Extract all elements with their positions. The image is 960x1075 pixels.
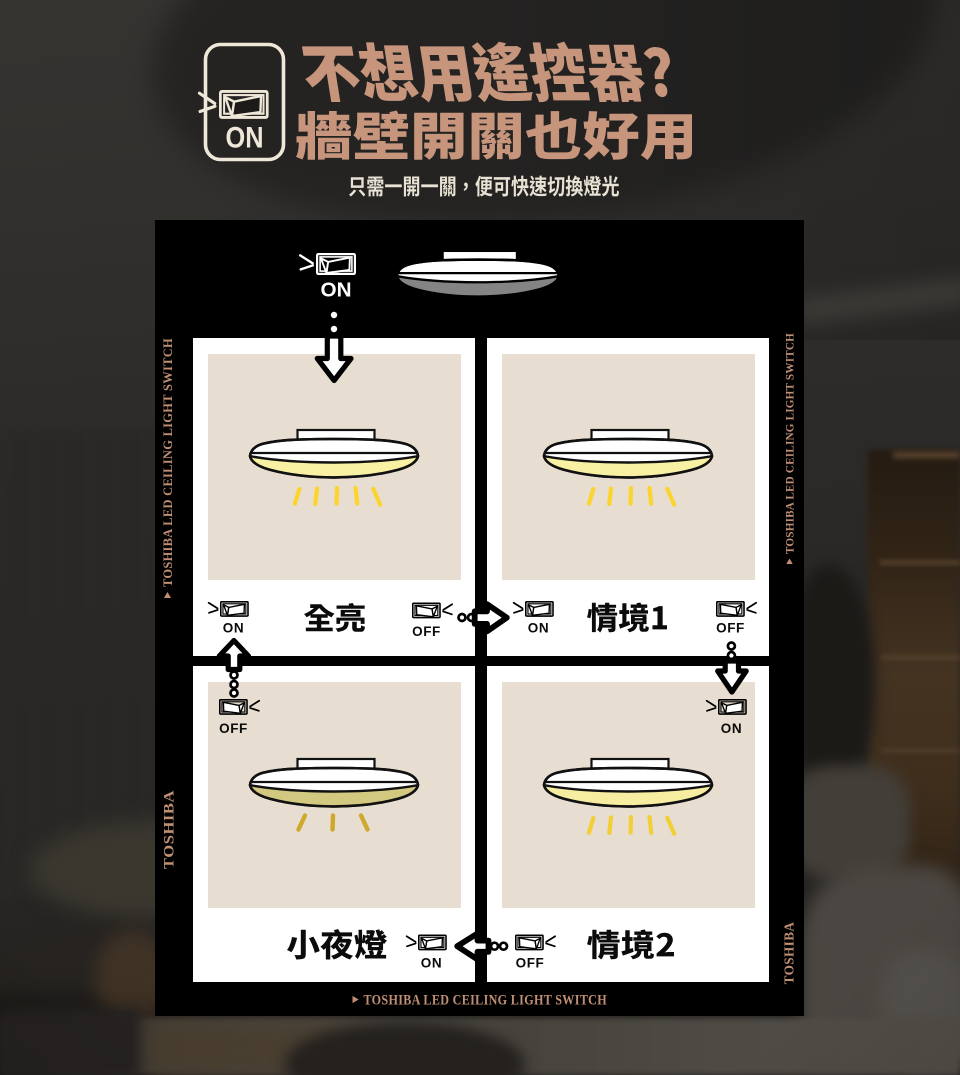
- svg-text:OFF: OFF: [219, 721, 248, 736]
- svg-text:OFF: OFF: [412, 624, 441, 639]
- svg-text:TOSHIBA LED CEILING LIGHT SWIT: TOSHIBA LED CEILING LIGHT SWITCH: [784, 333, 797, 554]
- svg-text:ON: ON: [321, 280, 352, 302]
- svg-text:OFF: OFF: [516, 956, 545, 971]
- svg-text:TOSHIBA: TOSHIBA: [782, 922, 797, 985]
- svg-text:TOSHIBA: TOSHIBA: [162, 790, 178, 869]
- svg-text:ON: ON: [421, 956, 442, 971]
- svg-text:ON: ON: [721, 721, 742, 736]
- svg-text:ON: ON: [528, 621, 549, 636]
- svg-text:TOSHIBA LED CEILING LIGHT SWIT: TOSHIBA LED CEILING LIGHT SWITCH: [160, 338, 175, 587]
- svg-text:TOSHIBA LED CEILING LIGHT SWIT: TOSHIBA LED CEILING LIGHT SWITCH: [364, 992, 608, 1008]
- svg-text:ON: ON: [226, 122, 264, 155]
- svg-text:ON: ON: [223, 621, 244, 636]
- svg-text:OFF: OFF: [716, 621, 745, 636]
